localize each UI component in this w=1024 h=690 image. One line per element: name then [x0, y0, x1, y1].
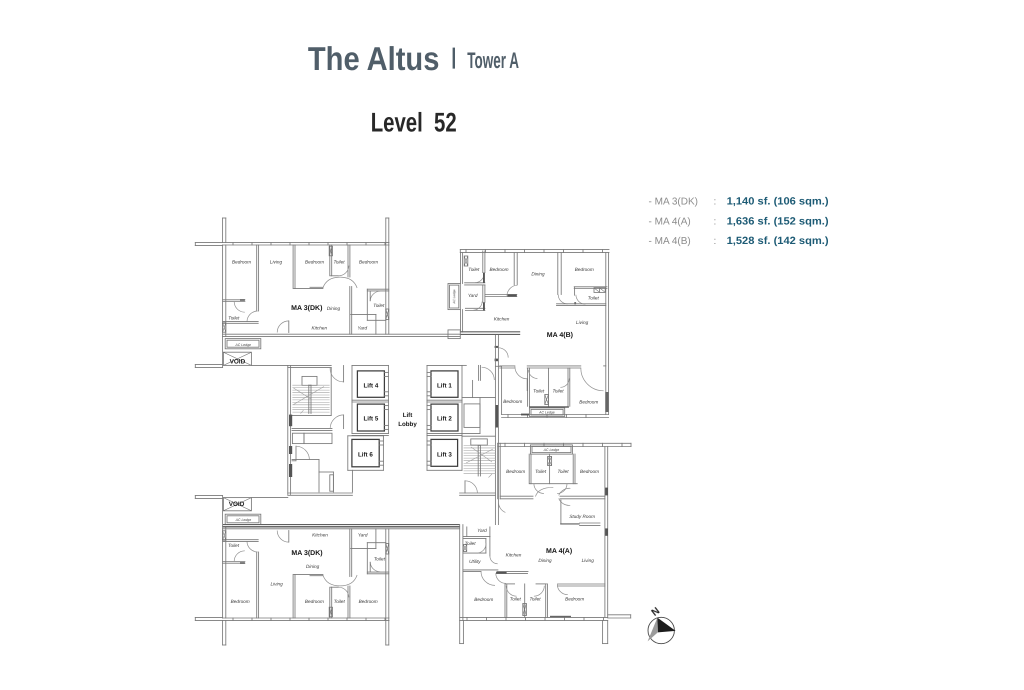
svg-text:1,636 sf. (152 sqm.): 1,636 sf. (152 sqm.) [727, 216, 829, 228]
svg-text:Bedroom: Bedroom [232, 260, 251, 265]
svg-text:Toilet: Toilet [465, 541, 477, 546]
svg-text:Bedroom: Bedroom [305, 599, 324, 604]
svg-text:Bedroom: Bedroom [503, 399, 522, 404]
svg-text:Toilet: Toilet [373, 303, 385, 308]
svg-text:Dining: Dining [531, 272, 545, 277]
svg-text:1,140 sf. (106 sqm.): 1,140 sf. (106 sqm.) [727, 196, 829, 208]
svg-text:Toilet: Toilet [552, 389, 564, 394]
svg-text::: : [714, 217, 717, 228]
svg-text:Toilet: Toilet [468, 267, 480, 272]
svg-text:Toilet: Toilet [510, 596, 522, 601]
svg-text:Kitchen: Kitchen [506, 553, 522, 558]
svg-text:Dining: Dining [327, 306, 341, 311]
svg-text:VOID: VOID [230, 359, 246, 366]
svg-text:Living: Living [576, 320, 589, 325]
svg-text:VOID: VOID [229, 501, 245, 508]
svg-text:AC Ledge: AC Ledge [543, 448, 560, 452]
svg-text:MA 3(DK): MA 3(DK) [291, 549, 322, 557]
svg-text:Lobby: Lobby [398, 421, 417, 428]
svg-text:Dining: Dining [306, 564, 320, 569]
svg-text:Toilet: Toilet [228, 543, 240, 548]
svg-text:Bedroom: Bedroom [359, 260, 378, 265]
svg-text:Toilet: Toilet [228, 316, 240, 321]
svg-text:Toilet: Toilet [334, 599, 346, 604]
svg-text:Toilet: Toilet [535, 469, 547, 474]
svg-text:Utility: Utility [469, 559, 481, 564]
svg-text:MA 4(B): MA 4(B) [547, 331, 573, 339]
svg-text:Lift 3: Lift 3 [437, 451, 452, 458]
svg-text:Yard: Yard [477, 528, 487, 533]
svg-text:Toilet: Toilet [333, 260, 345, 265]
svg-text:Bedroom: Bedroom [506, 469, 525, 474]
svg-text:AC Ledge: AC Ledge [452, 289, 456, 304]
svg-text:Bedroom: Bedroom [565, 596, 584, 601]
svg-text:Bedroom: Bedroom [231, 599, 250, 604]
svg-text:Bedroom: Bedroom [359, 599, 378, 604]
svg-text:Toilet: Toilet [533, 389, 545, 394]
svg-text:Study Room: Study Room [569, 514, 595, 519]
svg-text:Level 52: Level 52 [371, 108, 457, 138]
svg-text:The Altus: The Altus [308, 40, 440, 77]
svg-text:AC Ledge: AC Ledge [538, 411, 555, 415]
svg-text:Lift 4: Lift 4 [364, 382, 379, 389]
svg-text:Bedroom: Bedroom [575, 267, 594, 272]
svg-text:Toilet: Toilet [557, 469, 569, 474]
svg-text:Toilet: Toilet [588, 296, 600, 301]
svg-text:Toilet: Toilet [529, 596, 541, 601]
svg-text:Bedroom: Bedroom [579, 400, 598, 405]
svg-text:MA 4(A): MA 4(A) [546, 547, 572, 555]
svg-text:N: N [650, 606, 662, 619]
svg-text:AC Ledge: AC Ledge [234, 343, 251, 347]
svg-text:1,528 sf. (142 sqm.): 1,528 sf. (142 sqm.) [727, 235, 829, 247]
svg-text:Lift 1: Lift 1 [437, 382, 452, 389]
svg-text:MA 3(DK): MA 3(DK) [291, 304, 322, 312]
svg-text:Living: Living [270, 582, 283, 587]
svg-text:- MA 4(A): - MA 4(A) [649, 217, 691, 228]
svg-text:Kitchen: Kitchen [494, 317, 510, 322]
svg-text:Dining: Dining [538, 558, 552, 563]
svg-text:Bedroom: Bedroom [489, 267, 508, 272]
svg-text:Bedroom: Bedroom [305, 260, 324, 265]
svg-text:Kitchen: Kitchen [311, 325, 327, 330]
svg-text:Living: Living [582, 558, 595, 563]
svg-text:Kitchen: Kitchen [312, 533, 328, 538]
svg-text:Yard: Yard [358, 533, 368, 538]
svg-text:- MA 3(DK): - MA 3(DK) [649, 197, 698, 208]
svg-text:Lift: Lift [403, 412, 413, 419]
svg-text::: : [714, 197, 717, 208]
svg-text:Lift 6: Lift 6 [358, 451, 373, 458]
svg-text:Lift 2: Lift 2 [437, 416, 452, 423]
svg-text:Lift 5: Lift 5 [364, 416, 379, 423]
svg-text:Yard: Yard [358, 325, 368, 330]
svg-text:Toilet: Toilet [374, 557, 386, 562]
svg-text:Living: Living [270, 260, 283, 265]
svg-text:AC Ledge: AC Ledge [235, 518, 252, 522]
svg-text:Yard: Yard [468, 293, 478, 298]
svg-text:Tower A: Tower A [467, 48, 519, 73]
svg-text:- MA 4(B): - MA 4(B) [649, 236, 691, 247]
svg-text::: : [714, 236, 717, 247]
svg-text:Bedroom: Bedroom [474, 597, 493, 602]
svg-text:Bedroom: Bedroom [580, 469, 599, 474]
